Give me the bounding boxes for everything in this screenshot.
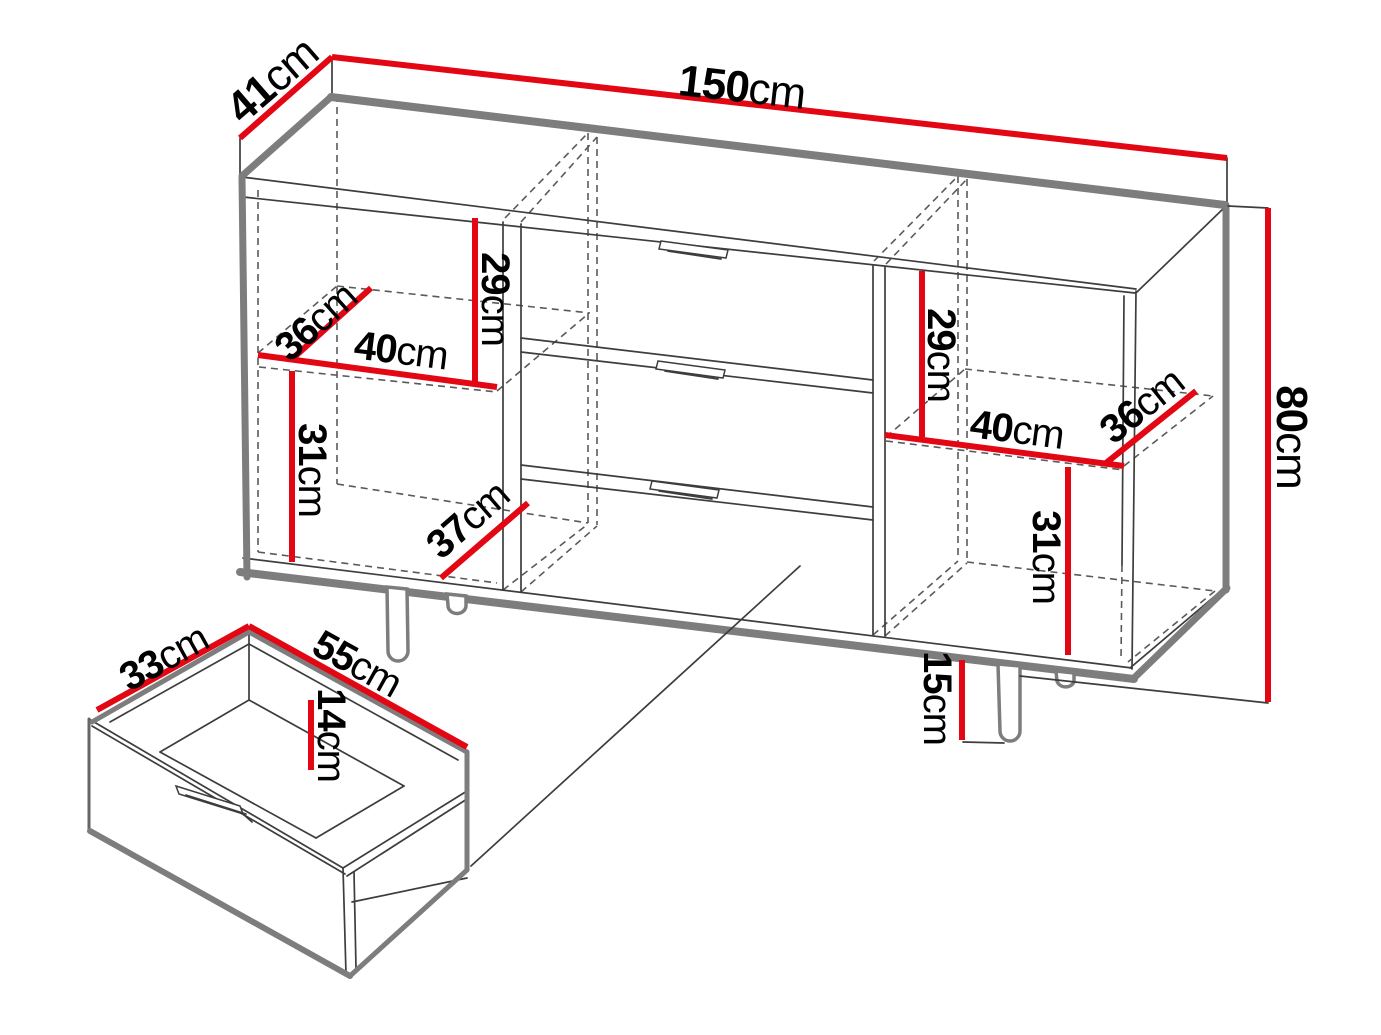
label-left-upper-height: 29cm bbox=[473, 252, 517, 346]
leg-front-left bbox=[387, 587, 408, 661]
label-right-upper-height: 29cm bbox=[919, 308, 963, 402]
label-drawer-depth: 33cm bbox=[112, 616, 215, 700]
extension-lines bbox=[471, 206, 1268, 866]
furniture-dimension-diagram: 41cm 150cm 80cm 29cm 36cm 40cm 31cm 37cm… bbox=[0, 0, 1381, 1035]
label-leg-height: 15cm bbox=[915, 651, 959, 745]
leg-back-left bbox=[447, 594, 466, 614]
cabinet-legs bbox=[387, 587, 1074, 741]
drawer-handles bbox=[650, 241, 728, 499]
label-height: 80cm bbox=[1268, 385, 1317, 489]
label-right-lower-height: 31cm bbox=[1024, 510, 1068, 604]
leg-back-right bbox=[1056, 671, 1074, 687]
drawer-leader-line bbox=[471, 566, 800, 866]
label-left-lower-height: 31cm bbox=[290, 423, 334, 517]
label-drawer-height: 14cm bbox=[309, 688, 353, 782]
leg-front-right bbox=[998, 664, 1020, 741]
diagram-canvas: 41cm 150cm 80cm 29cm 36cm 40cm 31cm 37cm… bbox=[0, 0, 1381, 1035]
label-top-width: 150cm bbox=[676, 56, 808, 119]
